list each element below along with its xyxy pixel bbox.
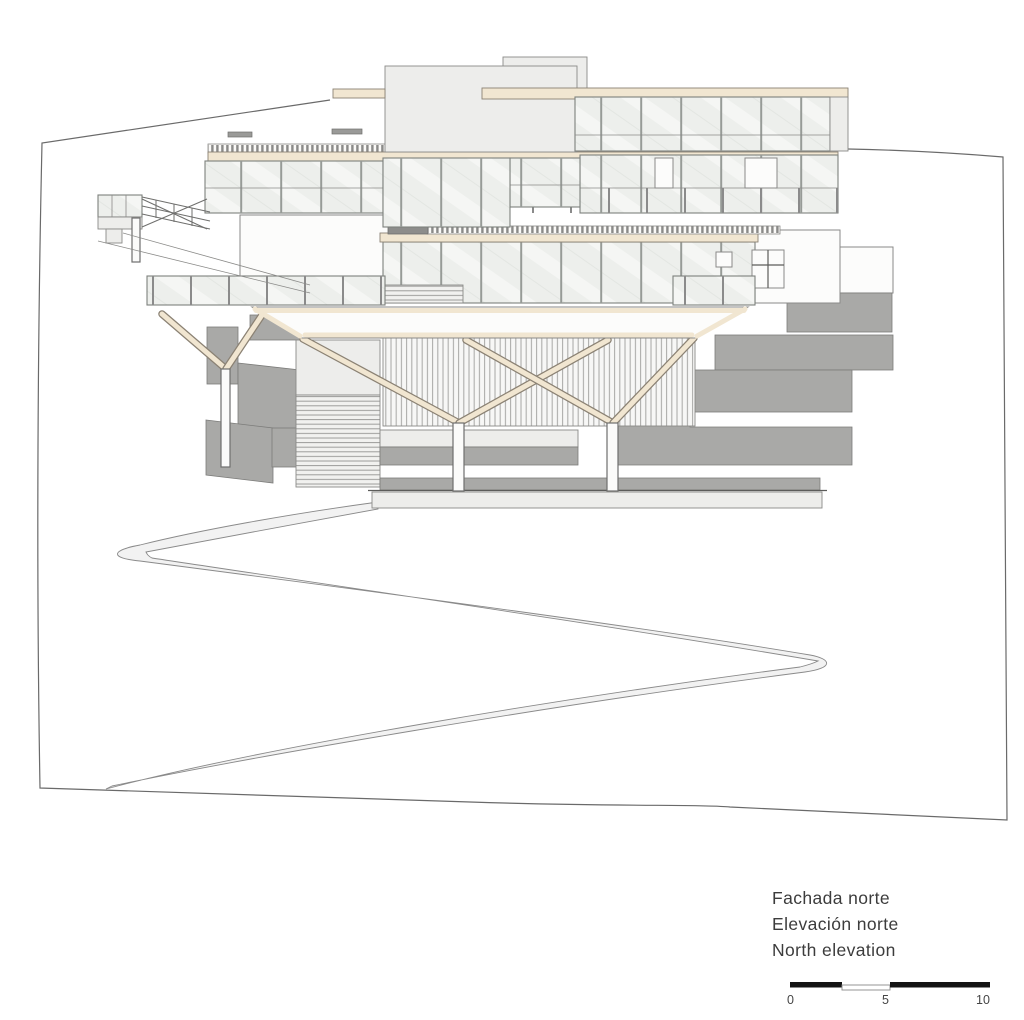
title-block: Fachada norte Elevación norte North elev… (772, 888, 899, 960)
title-es-1: Fachada norte (772, 888, 890, 908)
roof-level (228, 57, 848, 152)
small-window (716, 252, 732, 267)
platform-deck (252, 307, 748, 338)
scale-bar: 0 5 10 (787, 982, 990, 1007)
blank-wall-left (240, 215, 390, 278)
balcony-rail-left-posts (147, 276, 385, 305)
stilt-column-right (607, 423, 618, 491)
bridge-pier (106, 229, 122, 243)
scale-segment-0-2.5 (790, 982, 842, 988)
winding-path (106, 502, 827, 789)
ground-wall-strip (380, 478, 820, 490)
right-wall-2 (715, 335, 893, 370)
lower-band-gray (380, 447, 578, 465)
main-floor (147, 215, 840, 305)
roof-beam-left (333, 89, 385, 98)
stilt-column-center (453, 423, 464, 491)
lower-deck (372, 492, 822, 508)
title-en: North elevation (772, 940, 896, 960)
bridge-column (132, 218, 140, 262)
penthouse-end-wall (830, 97, 848, 151)
left-wall-4 (206, 420, 273, 483)
bridge-glass-rail (98, 195, 142, 217)
roof-vent-2 (332, 129, 362, 134)
scale-label-0: 0 (787, 993, 794, 1007)
stilt-column-left (221, 369, 230, 467)
lower-band-light (380, 430, 578, 447)
lower-wall (296, 340, 380, 395)
balcony-rail-right-posts (673, 276, 755, 305)
scale-segment-5-10 (890, 982, 990, 988)
upper-door-gap-1 (655, 158, 673, 188)
roof-block (385, 66, 577, 152)
right-wall-4 (617, 420, 852, 465)
elevation-sheet: Fachada norte Elevación norte North elev… (0, 0, 1024, 1020)
title-es-2: Elevación norte (772, 914, 899, 934)
louver-stair-block (296, 395, 380, 487)
retaining-walls-left (206, 315, 302, 483)
scale-label-5: 5 (882, 993, 889, 1007)
scale-label-10: 10 (976, 993, 990, 1007)
main-louver-band (380, 285, 463, 303)
upper-door-gap-2 (745, 158, 777, 188)
elevation-drawing: Fachada norte Elevación norte North elev… (0, 0, 1024, 1020)
bridge-open-railing (142, 197, 210, 229)
scale-segment-2.5-5 (842, 985, 890, 990)
roof-vent-1 (228, 132, 252, 137)
driveway-switchback (106, 502, 827, 789)
right-wall-3 (693, 370, 852, 412)
